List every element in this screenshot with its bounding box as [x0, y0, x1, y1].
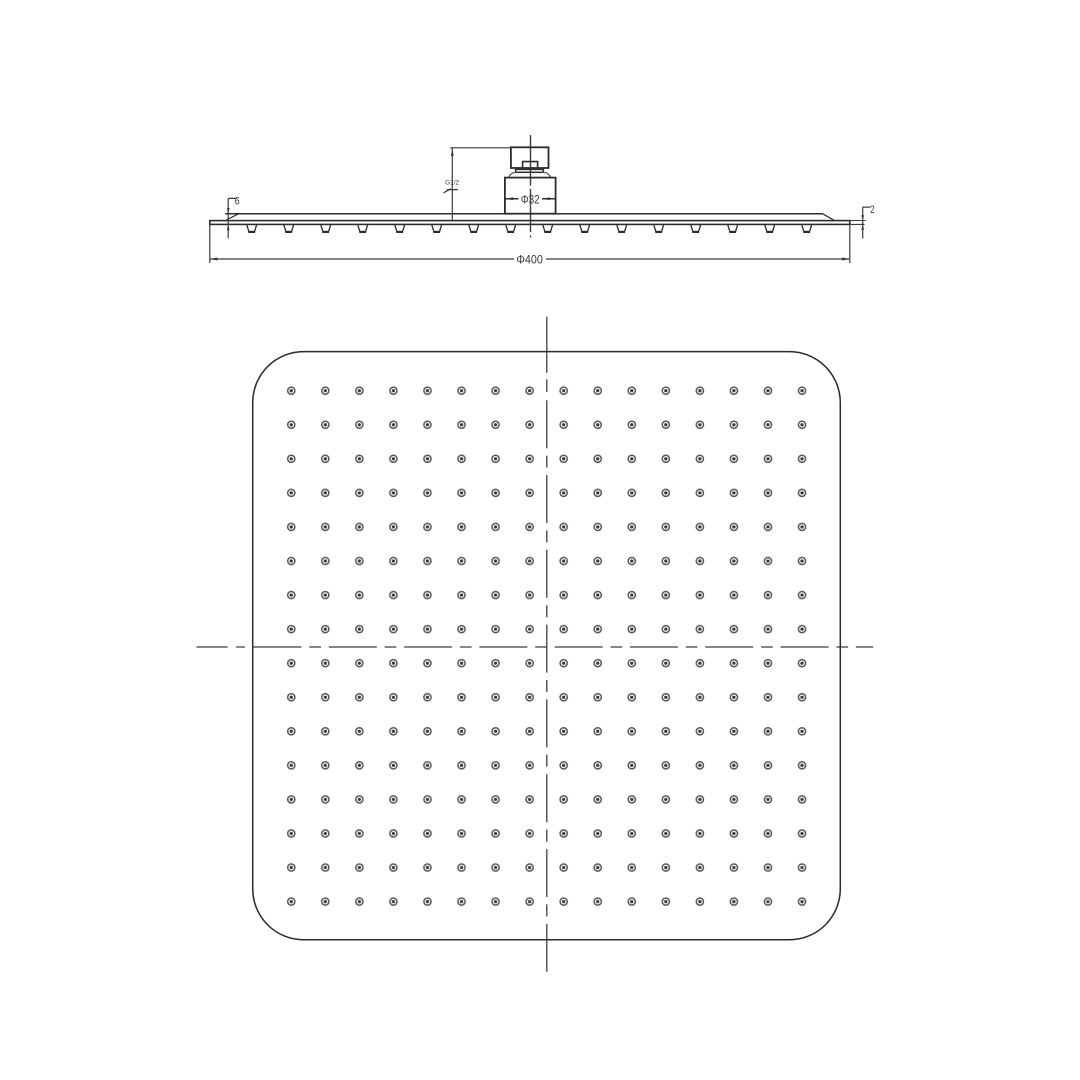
svg-text:2: 2 — [870, 204, 875, 216]
svg-text:Φ32: Φ32 — [521, 193, 540, 207]
svg-text:6: 6 — [235, 195, 240, 207]
svg-text:Φ400: Φ400 — [516, 253, 543, 267]
svg-text:G1/2: G1/2 — [445, 180, 459, 187]
